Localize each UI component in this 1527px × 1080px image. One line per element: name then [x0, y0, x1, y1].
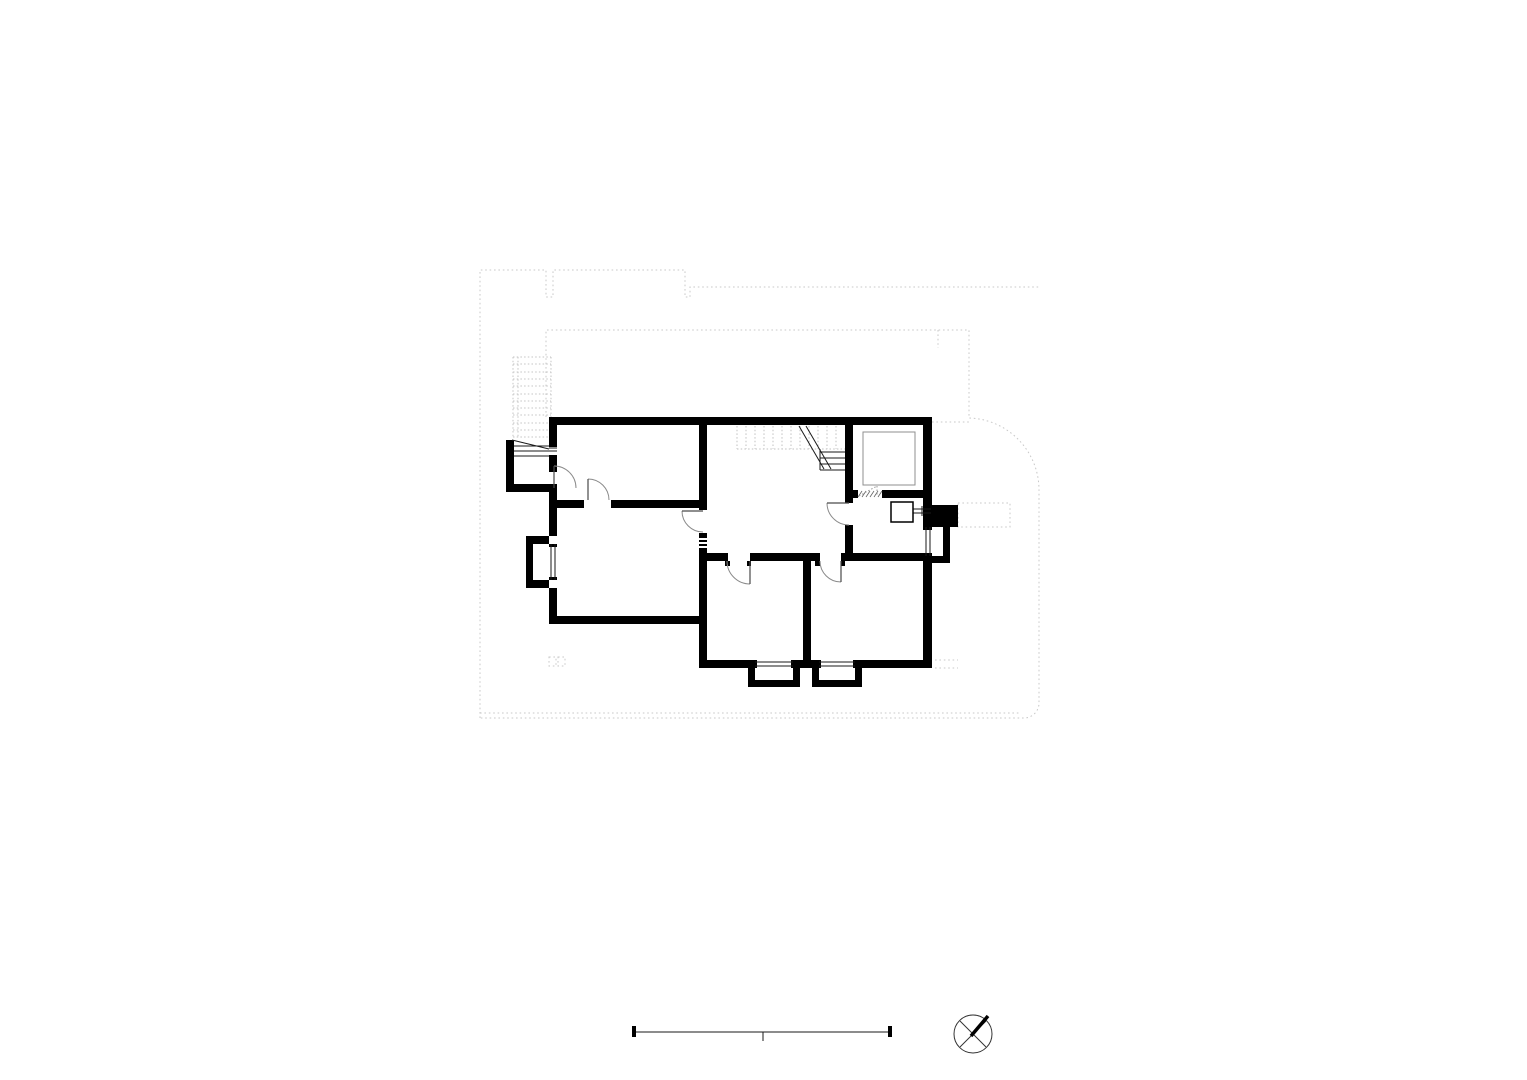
stair-upper-flight-dotted: [737, 426, 845, 449]
thin-detail-lines: [512, 426, 931, 666]
exterior-stair-dotted: [513, 357, 551, 437]
scale-bar-line: [635, 1032, 891, 1041]
sink-fixture: [891, 502, 913, 522]
door-threshold-hatch: [858, 491, 882, 497]
bath-platform-outline: [863, 432, 915, 485]
walls: [506, 417, 958, 687]
site-outline-dotted: [480, 270, 1039, 718]
floor-plan-drawing: [0, 0, 1527, 1080]
drawing-sheet: [0, 0, 1527, 1080]
